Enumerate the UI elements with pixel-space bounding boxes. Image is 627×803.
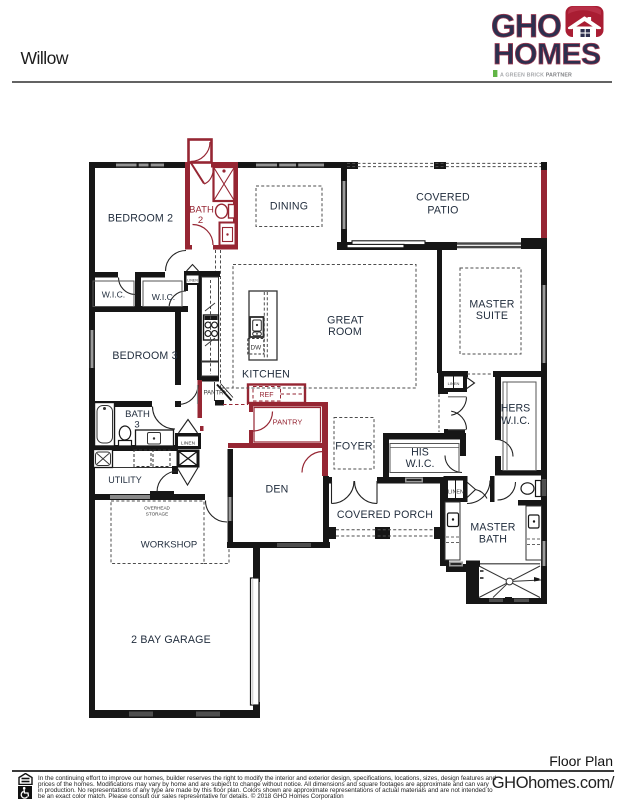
svg-text:REF: REF: [260, 392, 274, 399]
svg-text:W.I.C.: W.I.C.: [102, 290, 125, 300]
svg-text:LINEN: LINEN: [448, 381, 460, 386]
svg-text:DEN: DEN: [266, 484, 289, 496]
svg-text:PANTRY: PANTRY: [204, 391, 228, 397]
svg-text:2: 2: [198, 215, 203, 226]
svg-text:OVERHEAD: OVERHEAD: [144, 506, 170, 511]
svg-text:GREAT: GREAT: [327, 315, 364, 327]
svg-text:LINEN: LINEN: [181, 441, 196, 447]
svg-text:SUITE: SUITE: [476, 310, 508, 322]
svg-text:BEDROOM 3: BEDROOM 3: [112, 350, 177, 362]
svg-text:BATH: BATH: [189, 205, 214, 216]
svg-text:STORAGE: STORAGE: [146, 512, 168, 517]
svg-text:W.I.C.: W.I.C.: [501, 415, 530, 427]
svg-text:KITCHEN: KITCHEN: [242, 369, 290, 381]
svg-text:LINEN: LINEN: [448, 490, 464, 496]
svg-text:LINEN: LINEN: [187, 279, 198, 283]
svg-text:MASTER: MASTER: [470, 522, 515, 534]
svg-text:COVERED PORCH: COVERED PORCH: [337, 509, 433, 521]
svg-text:MASTER: MASTER: [469, 299, 514, 311]
svg-text:DW: DW: [250, 345, 262, 352]
svg-text:W.I.C.: W.I.C.: [152, 292, 175, 302]
svg-text:W.I.C.: W.I.C.: [406, 458, 435, 470]
svg-text:BATH: BATH: [125, 409, 150, 420]
svg-text:COVERED: COVERED: [416, 192, 470, 204]
svg-text:DINING: DINING: [270, 201, 308, 213]
svg-text:HERS: HERS: [501, 403, 530, 415]
svg-text:PANTRY: PANTRY: [273, 418, 303, 427]
svg-text:HIS: HIS: [411, 447, 429, 459]
svg-text:BATH: BATH: [479, 534, 507, 546]
svg-text:ROOM: ROOM: [328, 326, 362, 338]
svg-text:PATIO: PATIO: [427, 205, 458, 217]
svg-text:BEDROOM 2: BEDROOM 2: [108, 213, 173, 225]
svg-text:3: 3: [134, 420, 139, 431]
svg-text:UTILITY: UTILITY: [108, 475, 142, 485]
svg-text:2 BAY GARAGE: 2 BAY GARAGE: [131, 634, 211, 646]
svg-text:FOYER: FOYER: [335, 441, 373, 453]
svg-text:WORKSHOP: WORKSHOP: [141, 540, 197, 551]
